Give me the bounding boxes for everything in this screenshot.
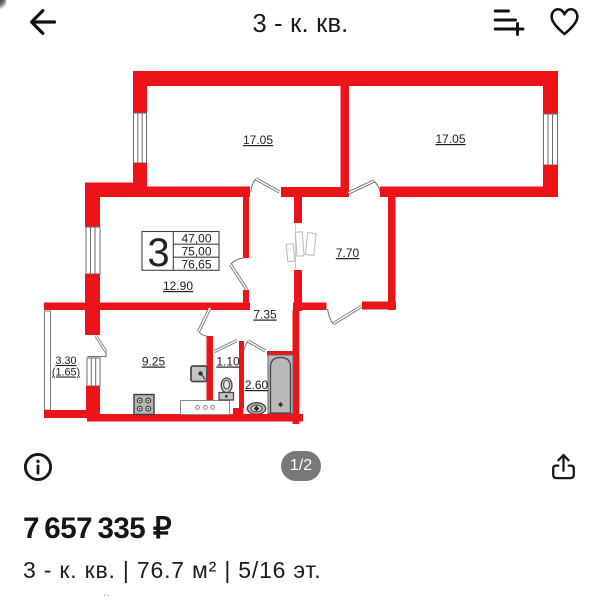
svg-text:12.90: 12.90 [163, 279, 193, 293]
svg-text:1.10: 1.10 [216, 355, 240, 369]
svg-text:(1.65): (1.65) [52, 367, 80, 379]
svg-text:7.35: 7.35 [253, 308, 277, 322]
svg-text:47,00: 47,00 [181, 231, 211, 245]
svg-text:75,00: 75,00 [181, 244, 211, 258]
svg-text:7.70: 7.70 [336, 246, 360, 260]
svg-text:3: 3 [147, 231, 169, 275]
svg-text:9.25: 9.25 [142, 355, 166, 369]
svg-text:17.05: 17.05 [243, 133, 273, 147]
svg-text:3.30: 3.30 [55, 355, 76, 367]
svg-text:2.60: 2.60 [245, 378, 269, 392]
svg-text:17.05: 17.05 [435, 132, 465, 146]
svg-text:76,65: 76,65 [181, 257, 211, 271]
